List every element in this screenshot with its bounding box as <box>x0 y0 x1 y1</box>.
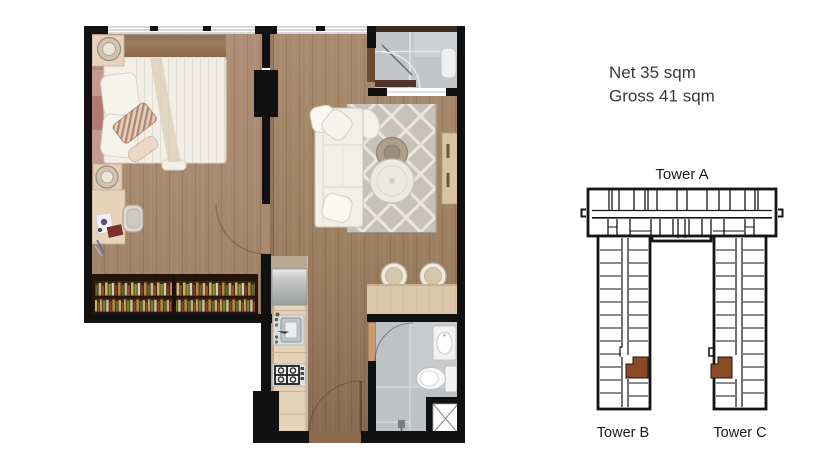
svg-text:Net 35 sqm: Net 35 sqm <box>609 63 696 82</box>
svg-text:Gross 41 sqm: Gross 41 sqm <box>609 87 715 106</box>
svg-text:Tower B: Tower B <box>597 425 649 441</box>
svg-text:Tower C: Tower C <box>713 425 766 441</box>
svg-text:Tower A: Tower A <box>655 166 708 183</box>
